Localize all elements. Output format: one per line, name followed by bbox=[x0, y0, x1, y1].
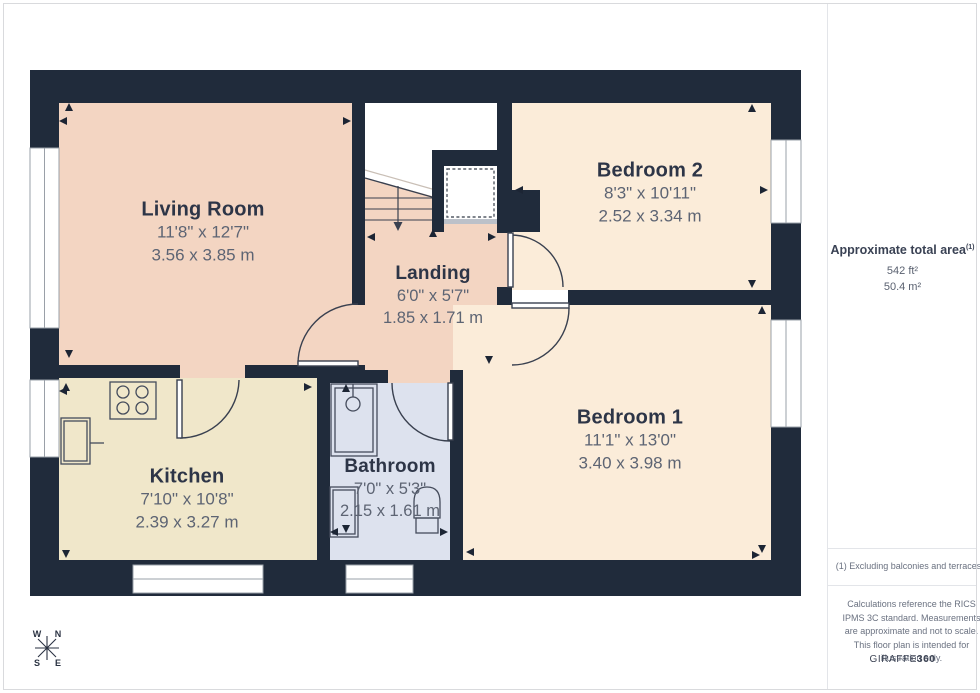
room-dim-imperial: 6'0" x 5'7" bbox=[383, 285, 483, 307]
compass-icon: W N S E bbox=[33, 629, 62, 668]
window-kitchen-left bbox=[30, 380, 59, 457]
room-dim-metric: 3.56 x 3.85 m bbox=[141, 245, 264, 268]
compass-north-label: N bbox=[55, 629, 62, 639]
floor-plan-page: W N S E Living Room 11'8" x 12'7" 3.56 x… bbox=[0, 0, 980, 693]
total-area-metric: 50.4 m² bbox=[828, 281, 977, 293]
total-area-title: Approximate total area(1) bbox=[828, 243, 977, 257]
divider-line bbox=[828, 585, 977, 586]
room-name: Bedroom 2 bbox=[597, 160, 703, 183]
compass-west-label: W bbox=[33, 629, 42, 639]
room-name: Landing bbox=[383, 263, 483, 285]
room-name: Kitchen bbox=[135, 466, 238, 489]
room-dim-imperial: 11'1" x 13'0" bbox=[577, 430, 683, 453]
room-label-kitchen: Kitchen 7'10" x 10'8" 2.39 x 3.27 m bbox=[135, 466, 238, 535]
room-dim-metric: 2.15 x 1.61 m bbox=[340, 500, 440, 522]
hatch-dashed-outline bbox=[447, 169, 494, 217]
window-bedroom1-right bbox=[771, 320, 801, 427]
giraffe360-logo: GIRAFFE360 bbox=[828, 654, 977, 665]
room-label-living-room: Living Room 11'8" x 12'7" 3.56 x 3.85 m bbox=[141, 199, 264, 268]
room-dim-imperial: 11'8" x 12'7" bbox=[141, 222, 264, 245]
footnote-marker: (1) bbox=[966, 244, 975, 251]
room-label-bedroom-2: Bedroom 2 8'3" x 10'11" 2.52 x 3.34 m bbox=[597, 160, 703, 229]
room-dim-metric: 2.52 x 3.34 m bbox=[597, 206, 703, 229]
room-name: Bathroom bbox=[340, 456, 440, 478]
window-living-left bbox=[30, 148, 59, 328]
total-area-imperial: 542 ft² bbox=[828, 265, 977, 277]
info-sidebar: Approximate total area(1) 542 ft² 50.4 m… bbox=[828, 0, 977, 693]
room-dim-metric: 2.39 x 3.27 m bbox=[135, 512, 238, 535]
room-name: Bedroom 1 bbox=[577, 407, 683, 430]
room-dim-metric: 1.85 x 1.71 m bbox=[383, 307, 483, 329]
room-name: Living Room bbox=[141, 199, 264, 222]
compass-south-label: S bbox=[34, 658, 40, 668]
room-label-bathroom: Bathroom 7'0" x 5'3" 2.15 x 1.61 m bbox=[340, 456, 440, 522]
window-bathroom-bottom bbox=[346, 565, 413, 593]
room-label-landing: Landing 6'0" x 5'7" 1.85 x 1.71 m bbox=[383, 263, 483, 329]
area-footnote: (1) Excluding balconies and terraces bbox=[828, 561, 980, 571]
window-bedroom2-right bbox=[771, 140, 801, 223]
compass-east-label: E bbox=[55, 658, 61, 668]
divider-line bbox=[828, 548, 977, 549]
room-dim-imperial: 7'0" x 5'3" bbox=[340, 478, 440, 500]
room-label-bedroom-1: Bedroom 1 11'1" x 13'0" 3.40 x 3.98 m bbox=[577, 407, 683, 476]
room-dim-metric: 3.40 x 3.98 m bbox=[577, 453, 683, 476]
loft-hatch bbox=[444, 166, 497, 224]
room-dim-imperial: 7'10" x 10'8" bbox=[135, 489, 238, 512]
room-dim-imperial: 8'3" x 10'11" bbox=[597, 183, 703, 206]
window-kitchen-bottom bbox=[133, 565, 263, 593]
